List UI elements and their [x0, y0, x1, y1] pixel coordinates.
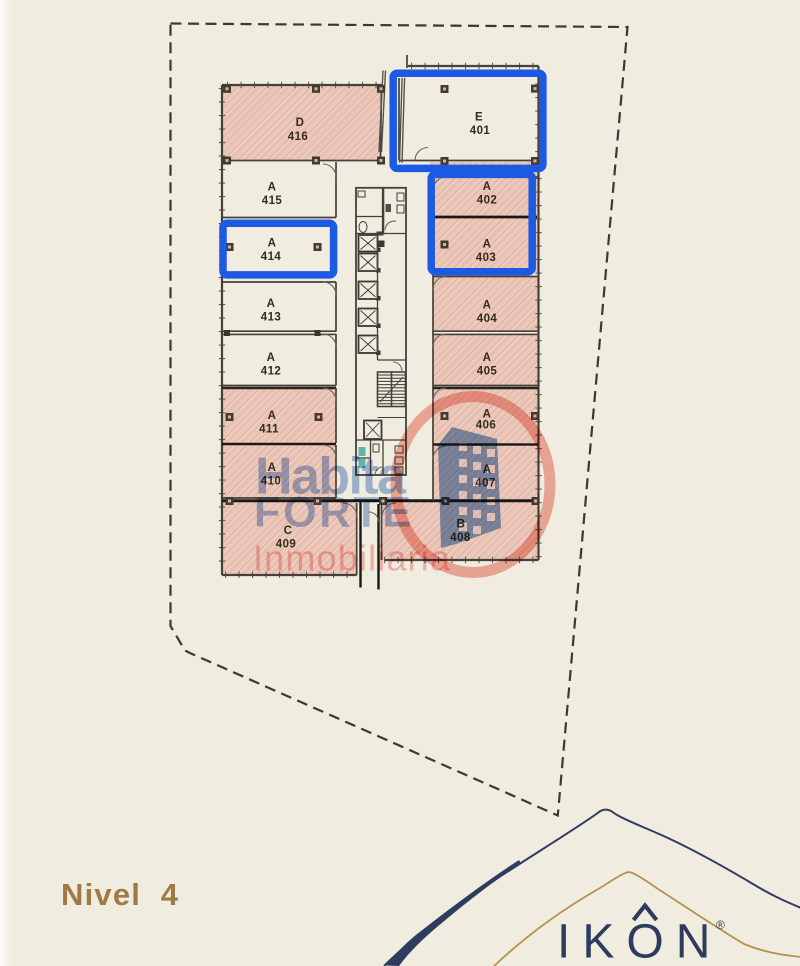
svg-text:402: 402: [477, 195, 497, 207]
svg-text:A: A: [483, 239, 492, 251]
svg-text:A: A: [267, 298, 276, 310]
svg-text:E: E: [475, 112, 483, 124]
svg-text:Inmobiliaria: Inmobiliaria: [253, 538, 451, 579]
svg-text:A: A: [268, 410, 277, 422]
svg-text:401: 401: [470, 125, 491, 137]
svg-text:415: 415: [262, 195, 283, 207]
svg-text:416: 416: [288, 131, 308, 143]
svg-text:406: 406: [476, 420, 496, 432]
svg-text:414: 414: [261, 251, 282, 263]
svg-text:D: D: [296, 117, 305, 129]
svg-text:403: 403: [476, 252, 496, 264]
svg-text:IKON: IKON: [557, 916, 722, 966]
svg-text:405: 405: [477, 366, 498, 378]
svg-text:A: A: [267, 352, 276, 364]
svg-text:A: A: [483, 300, 492, 312]
svg-text:412: 412: [261, 366, 281, 378]
svg-text:A: A: [268, 238, 277, 250]
svg-text:404: 404: [477, 313, 498, 325]
svg-text:FORTE: FORTE: [254, 489, 411, 537]
svg-text:Nivel 4: Nivel 4: [61, 877, 179, 912]
svg-text:411: 411: [259, 424, 279, 436]
svg-text:A: A: [483, 352, 492, 364]
svg-text:A: A: [483, 181, 492, 193]
svg-text:®: ®: [716, 918, 725, 932]
svg-text:A: A: [268, 182, 277, 194]
svg-text:413: 413: [261, 312, 281, 324]
